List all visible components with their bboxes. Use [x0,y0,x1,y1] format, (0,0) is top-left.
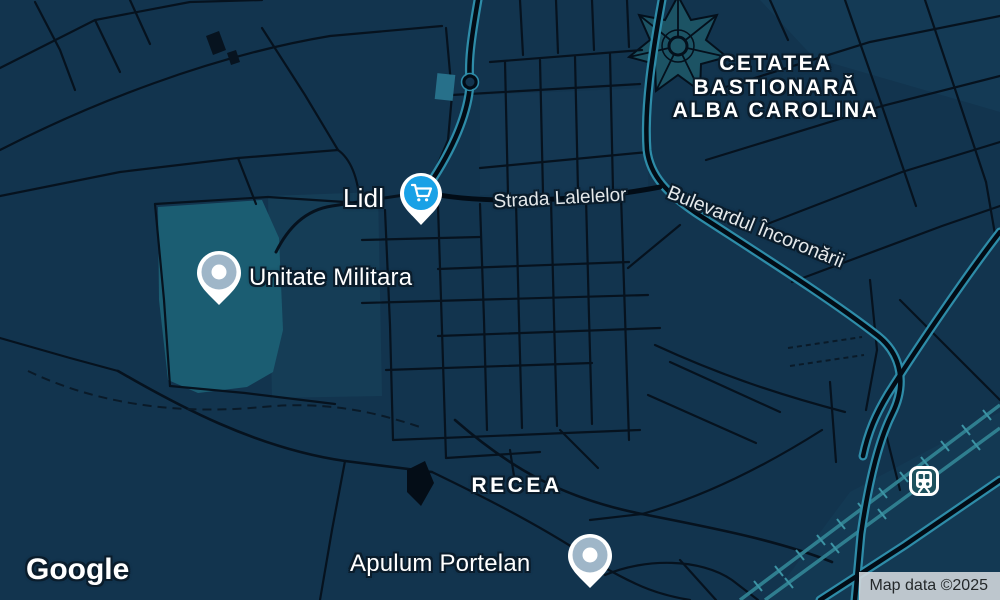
train-station-icon [912,469,936,493]
poi-label-lidl[interactable]: Lidl [343,183,384,214]
poi-label-apulum-portelan[interactable]: Apulum Portelan [350,550,530,578]
citadel-line-2: BASTIONARĂ [666,76,886,100]
area-label-citadel: CETATEA BASTIONARĂ ALBA CAROLINA [666,52,886,123]
area-label-recea: RECEA [467,474,567,498]
attribution-label: Map data ©2025 [859,572,1000,600]
lidl-marker[interactable] [399,172,443,231]
unitate-militara-marker[interactable] [196,250,242,311]
pin-circle [404,176,438,210]
apulum-portelan-marker[interactable] [567,533,613,594]
poi-pin-icon [212,265,227,280]
map-view[interactable]: CETATEA BASTIONARĂ ALBA CAROLINA RECEA S… [0,0,1000,600]
roundabout-icon [462,74,479,91]
google-logo[interactable]: Google [26,553,129,587]
citadel-line-1: CETATEA [666,52,886,76]
poi-label-unitate-militara[interactable]: Unitate Militara [249,264,412,292]
train-station-marker[interactable] [909,466,939,496]
citadel-line-3: ALBA CAROLINA [666,99,886,123]
poi-pin-icon [583,548,598,563]
